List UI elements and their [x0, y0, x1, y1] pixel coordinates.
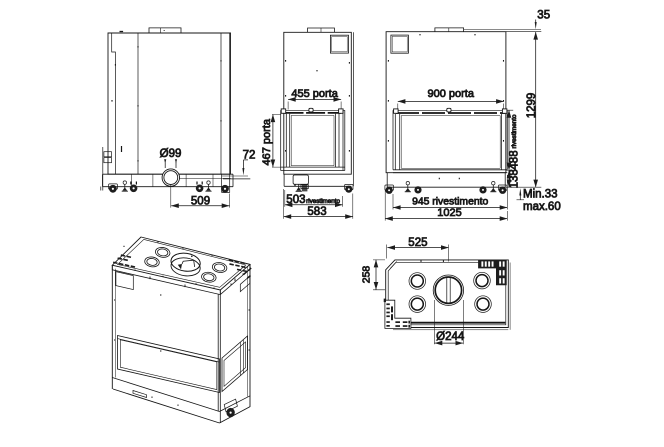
svg-text:900 porta: 900 porta: [427, 88, 474, 100]
svg-text:rivestimento: rivestimento: [511, 114, 518, 148]
svg-text:138: 138: [509, 169, 521, 188]
svg-text:455 porta: 455 porta: [291, 88, 338, 100]
svg-text:467 porta: 467 porta: [261, 118, 273, 165]
svg-text:72: 72: [243, 150, 256, 162]
svg-text:1025: 1025: [437, 207, 461, 219]
svg-text:35: 35: [537, 9, 550, 21]
svg-text:258: 258: [361, 266, 373, 284]
svg-text:945 rivestimento: 945 rivestimento: [412, 197, 488, 208]
svg-text:525: 525: [408, 237, 427, 249]
svg-text:Ø99: Ø99: [160, 148, 182, 160]
svg-text:509: 509: [191, 195, 210, 207]
svg-text:583: 583: [307, 206, 326, 218]
svg-text:Min.33: Min.33: [523, 188, 558, 200]
svg-text:488: 488: [509, 150, 521, 169]
svg-text:Ø244: Ø244: [436, 331, 465, 343]
svg-text:max.60: max.60: [523, 201, 561, 213]
svg-text:1299: 1299: [526, 93, 538, 119]
svg-text:503: 503: [286, 194, 305, 206]
svg-text:rivestimento: rivestimento: [306, 198, 340, 205]
